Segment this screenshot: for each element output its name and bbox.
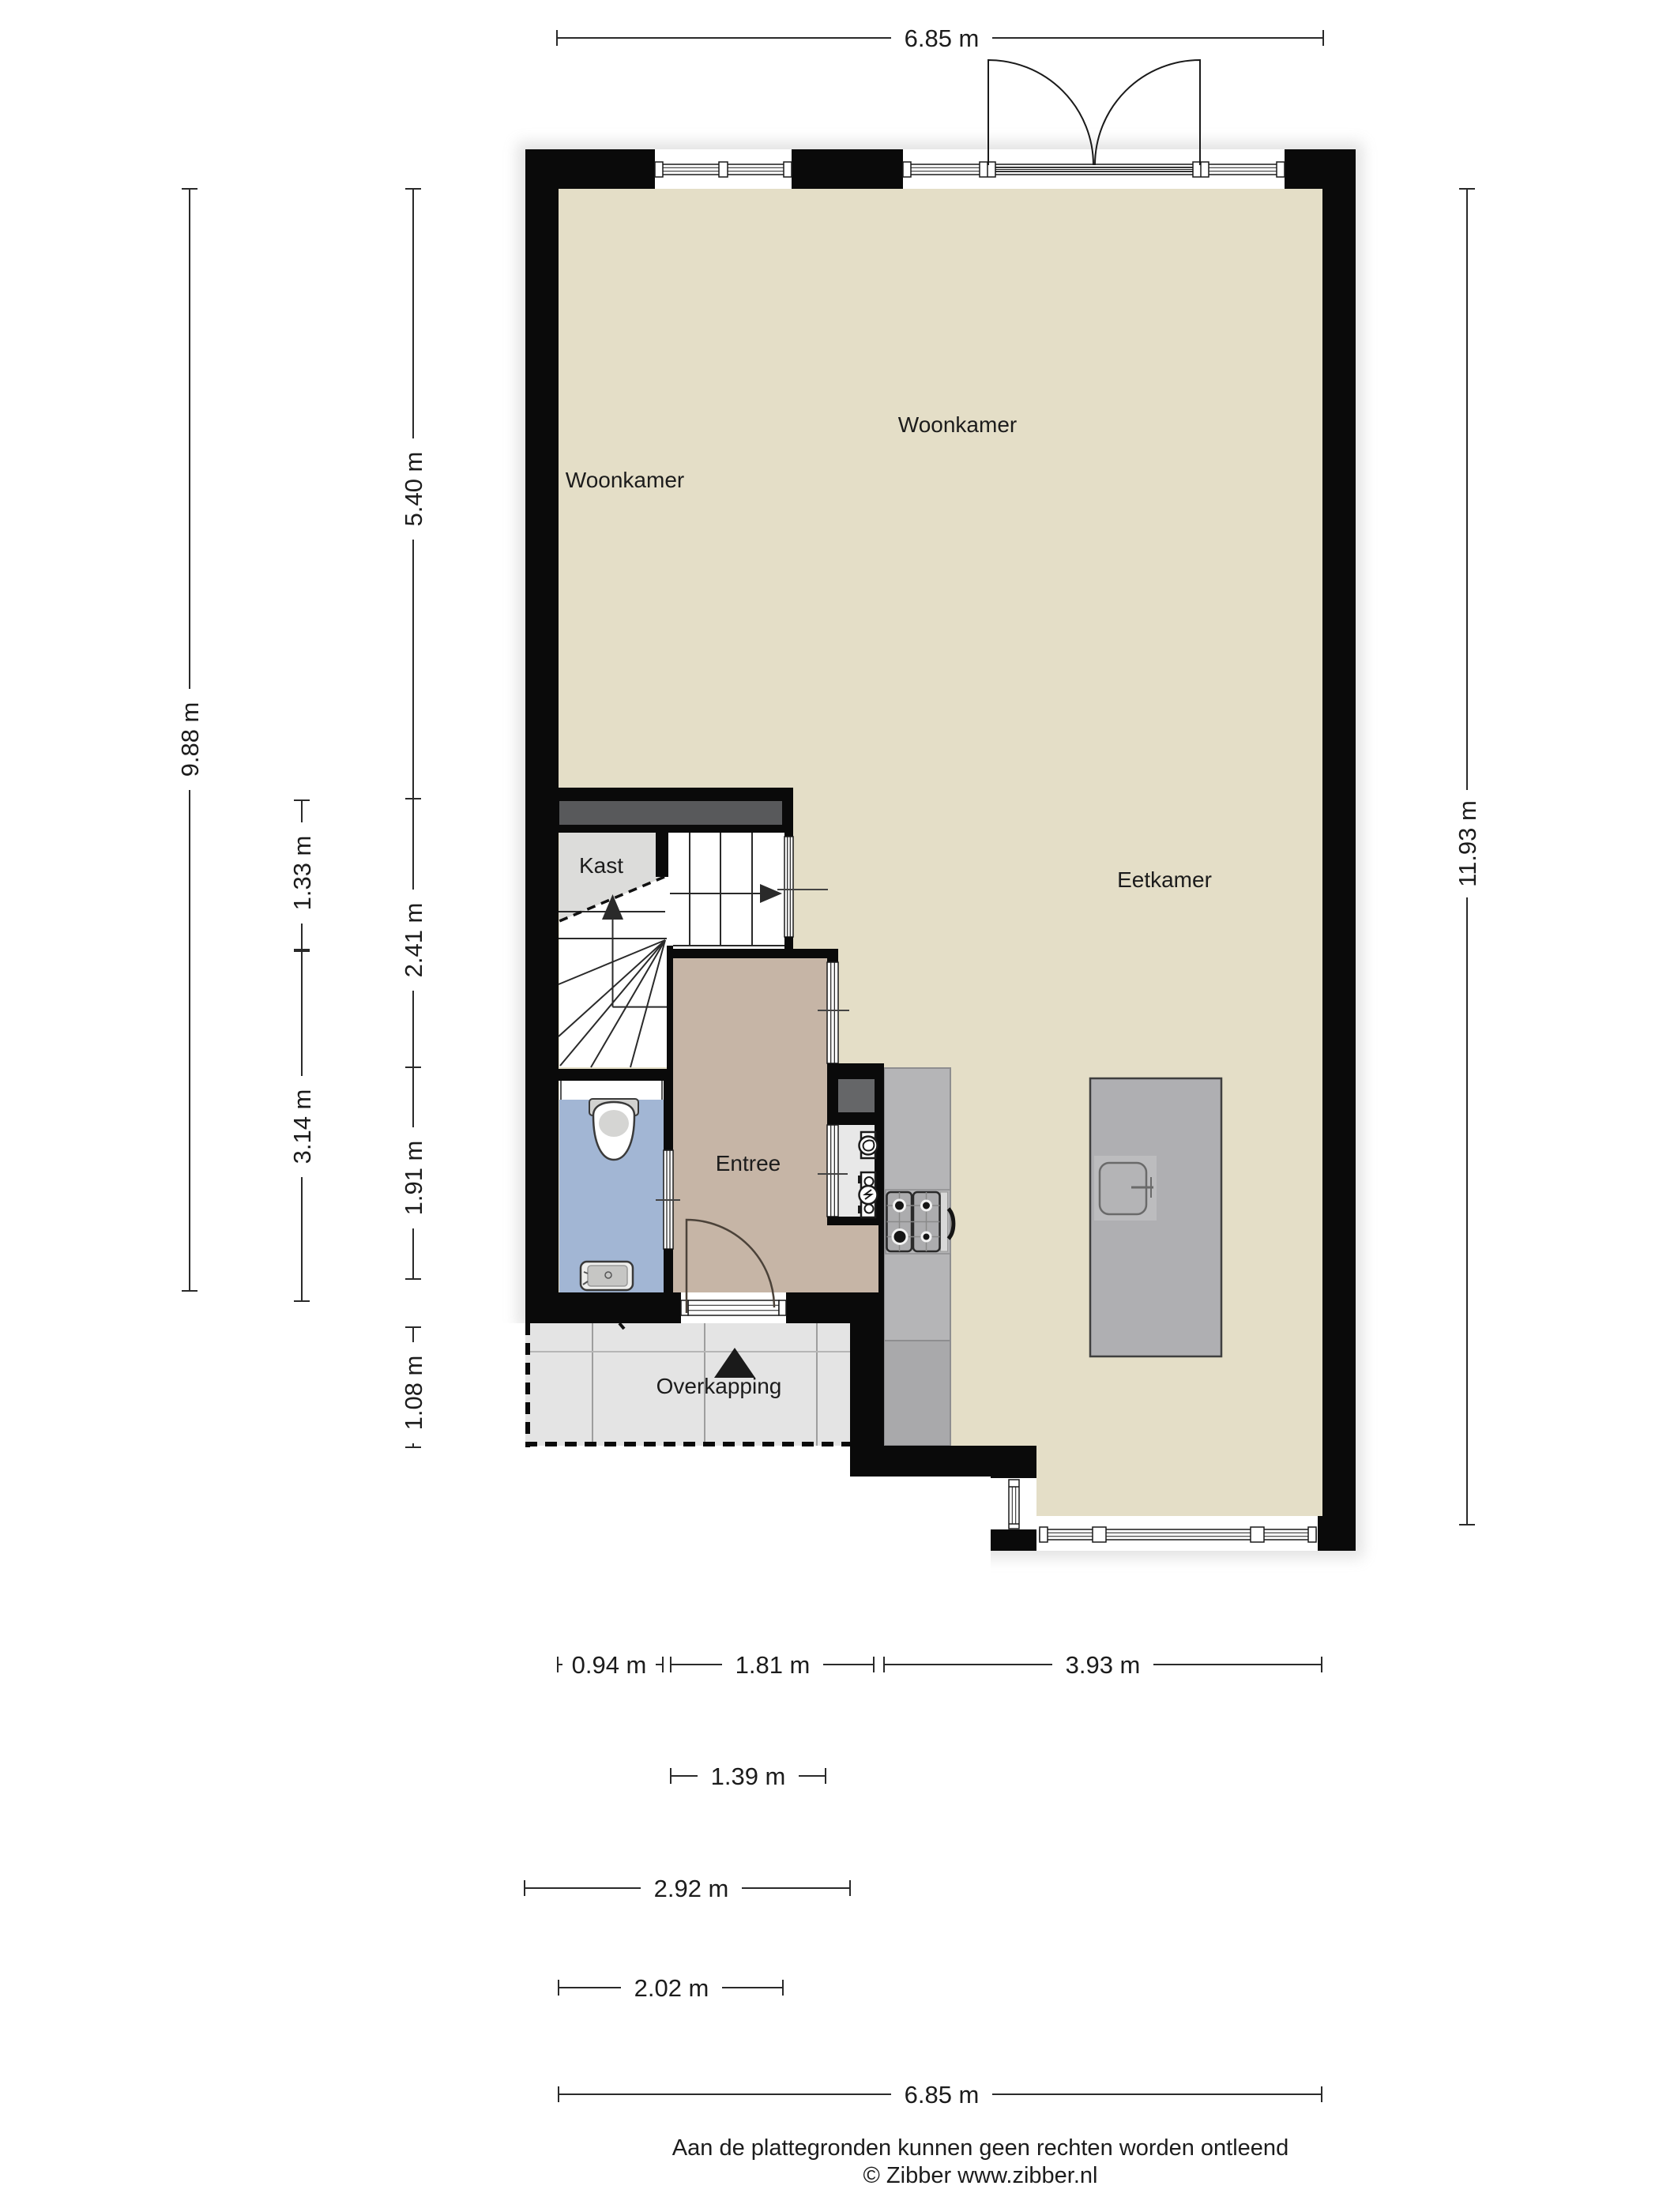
svg-text:Eetkamer: Eetkamer [1117, 867, 1212, 892]
svg-text:3.14 m: 3.14 m [288, 1089, 316, 1164]
svg-text:1.08 m: 1.08 m [400, 1356, 427, 1431]
svg-text:© Zibber www.zibber.nl: © Zibber www.zibber.nl [863, 2163, 1098, 2188]
svg-text:2.92 m: 2.92 m [654, 1875, 729, 1902]
svg-text:Woonkamer: Woonkamer [898, 412, 1017, 437]
svg-text:3.93 m: 3.93 m [1066, 1651, 1141, 1679]
svg-text:5.40 m: 5.40 m [400, 452, 427, 527]
svg-text:Entree: Entree [716, 1151, 781, 1176]
svg-text:2.02 m: 2.02 m [634, 1974, 709, 2002]
svg-text:0.94 m: 0.94 m [572, 1651, 647, 1679]
svg-text:2.41 m: 2.41 m [400, 903, 427, 978]
svg-text:1.39 m: 1.39 m [711, 1762, 786, 1790]
svg-text:6.85 m: 6.85 m [905, 24, 980, 52]
svg-text:Woonkamer: Woonkamer [566, 468, 684, 492]
svg-text:Aan de plattegronden kunnen ge: Aan de plattegronden kunnen geen rechten… [672, 2135, 1288, 2161]
svg-text:11.93 m: 11.93 m [1454, 800, 1481, 887]
svg-text:Kast: Kast [579, 853, 623, 878]
svg-text:1.91 m: 1.91 m [400, 1141, 427, 1216]
svg-text:1.81 m: 1.81 m [735, 1651, 811, 1679]
svg-text:1.33 m: 1.33 m [288, 836, 316, 911]
svg-text:6.85 m: 6.85 m [905, 2081, 980, 2109]
svg-text:9.88 m: 9.88 m [176, 702, 204, 777]
